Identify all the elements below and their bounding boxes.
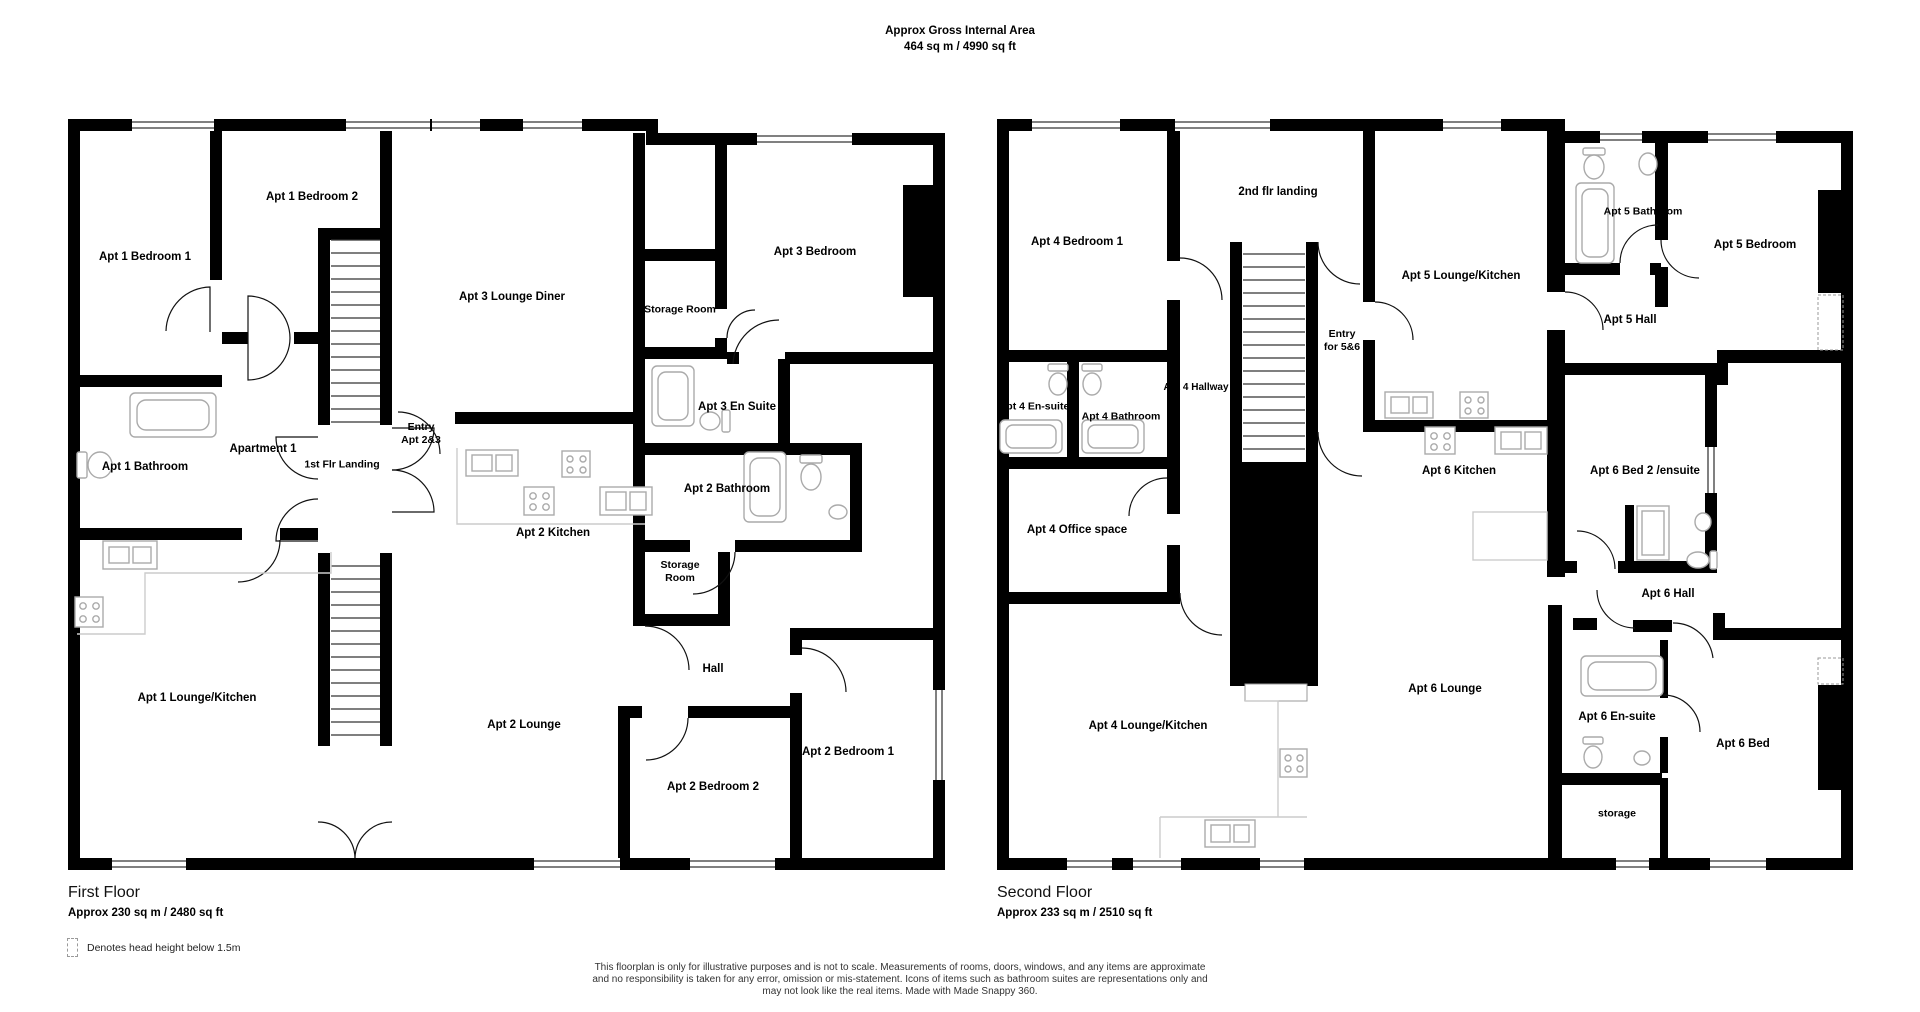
room-label-apt5-bathroom: Apt 5 Bathroom	[1604, 206, 1683, 219]
room-label-apt1-bedroom2: Apt 1 Bedroom 2	[266, 190, 358, 204]
bathtub-icon	[1000, 420, 1062, 453]
basin-icon	[829, 505, 847, 519]
floor-plan-drawing	[0, 0, 1920, 1012]
room-label-apt4-en-suite: Apt 4 En-suite	[999, 401, 1070, 414]
room-label-1st-flr-landing: 1st Flr Landing	[304, 459, 379, 472]
second-floor-walls	[997, 119, 1853, 870]
hob-icon	[1425, 427, 1455, 454]
room-label-apt1-lounge-kitchen: Apt 1 Lounge/Kitchen	[138, 691, 257, 705]
toilet-icon	[1583, 737, 1603, 768]
room-label-apt5-bedroom: Apt 5 Bedroom	[1714, 238, 1796, 252]
gross-area-title: Approx Gross Internal Area	[885, 24, 1035, 40]
second-floor-plan	[997, 119, 1853, 870]
toilet-icon	[800, 455, 822, 490]
floorplan-page: Approx Gross Internal Area 464 sq m / 49…	[0, 0, 1920, 1012]
room-label-apt1-bathroom: Apt 1 Bathroom	[102, 460, 188, 474]
room-label-apartment1: Apartment 1	[229, 442, 296, 456]
second-floor-name: Second Floor	[997, 884, 1152, 902]
first-floor-name: First Floor	[68, 884, 223, 902]
disclaimer: This floorplan is only for illustrative …	[395, 962, 1405, 998]
room-label-apt6-bed2-ensuite: Apt 6 Bed 2 /ensuite	[1590, 464, 1700, 478]
second-floor-title-block: Second Floor Approx 233 sq m / 2510 sq f…	[997, 884, 1152, 919]
kitchen-sink-icon	[1495, 427, 1547, 454]
hob-icon	[1280, 749, 1307, 777]
bathtub-icon	[1082, 420, 1144, 453]
room-label-apt2-bathroom: Apt 2 Bathroom	[684, 482, 770, 496]
second-floor-fixtures	[1000, 148, 1717, 858]
room-label-apt2-bedroom2: Apt 2 Bedroom 2	[667, 780, 759, 794]
room-label-entry-apt-2-3: Entry Apt 2&3	[401, 421, 441, 447]
toilet-icon	[1687, 551, 1717, 569]
hob-icon	[524, 487, 554, 515]
kitchen-sink-icon	[466, 450, 518, 476]
bathtub-icon	[1576, 183, 1614, 263]
room-label-apt6-en-suite: Apt 6 En-suite	[1578, 710, 1655, 724]
disclaimer-line-1: This floorplan is only for illustrative …	[395, 962, 1405, 974]
room-label-2nd-flr-landing: 2nd flr landing	[1238, 185, 1317, 199]
room-label-apt5-lounge-kitchen: Apt 5 Lounge/Kitchen	[1402, 269, 1521, 283]
toilet-icon	[1082, 364, 1102, 395]
room-label-apt2-lounge: Apt 2 Lounge	[487, 718, 560, 732]
bathtub-icon	[130, 393, 216, 437]
room-label-entry-for-5-6: Entry for 5&6	[1324, 328, 1360, 354]
room-label-apt6-hall: Apt 6 Hall	[1641, 587, 1694, 601]
room-label-apt6-kitchen: Apt 6 Kitchen	[1422, 464, 1496, 478]
room-label-apt3-en-suite: Apt 3 En Suite	[698, 400, 776, 414]
second-floor-stairs-icon	[1243, 254, 1305, 449]
second-floor-area: Approx 233 sq m / 2510 sq ft	[997, 907, 1152, 919]
kitchen-sink-icon	[1385, 392, 1433, 418]
kitchen-counter-outline	[1473, 512, 1547, 560]
basin-icon	[1639, 153, 1657, 175]
hob-icon	[562, 451, 590, 477]
head-height-dashed-icon	[67, 938, 78, 957]
hob-icon	[1460, 392, 1488, 418]
shower-icon	[1637, 506, 1669, 560]
kitchen-sink-icon	[1205, 820, 1255, 847]
first-floor-area: Approx 230 sq m / 2480 sq ft	[68, 907, 223, 919]
kitchen-sink-icon	[600, 487, 652, 515]
disclaimer-line-2: and no responsibility is taken for any e…	[395, 974, 1405, 986]
room-label-apt3-bedroom: Apt 3 Bedroom	[774, 245, 856, 259]
hob-icon	[75, 597, 103, 627]
room-label-apt6-bed: Apt 6 Bed	[1716, 737, 1770, 751]
room-label-apt2-storage-room: Storage Room	[660, 559, 699, 585]
disclaimer-line-3: may not look like the real items. Made w…	[395, 986, 1405, 998]
room-label-apt2-bedroom1: Apt 2 Bedroom 1	[802, 745, 894, 759]
legend: Denotes head height below 1.5m	[67, 938, 241, 957]
basin-icon	[1634, 751, 1650, 765]
first-floor-stairs-icon	[331, 240, 380, 735]
room-label-apt4-bathroom: Apt 4 Bathroom	[1082, 411, 1161, 424]
stair-landing-step	[1245, 684, 1307, 701]
room-label-apt4-lounge-kitchen: Apt 4 Lounge/Kitchen	[1089, 719, 1208, 733]
toilet-icon	[1048, 364, 1068, 395]
room-label-apt6-lounge: Apt 6 Lounge	[1408, 682, 1481, 696]
room-label-apt3-lounge-diner: Apt 3 Lounge Diner	[459, 290, 565, 304]
toilet-icon	[1583, 148, 1605, 179]
bathtub-icon	[1581, 656, 1663, 696]
room-label-apt4-hallway: Apt 4 Hallway	[1163, 382, 1228, 394]
room-label-storage-room: Storage Room	[644, 304, 716, 317]
kitchen-sink-icon	[103, 541, 157, 569]
room-label-apt1-bedroom1: Apt 1 Bedroom 1	[99, 250, 191, 264]
bathtub-icon	[652, 366, 694, 426]
room-label-apt2-kitchen: Apt 2 Kitchen	[516, 526, 590, 540]
room-label-storage: storage	[1598, 808, 1636, 821]
page-header: Approx Gross Internal Area 464 sq m / 49…	[885, 24, 1035, 55]
room-label-apt5-hall: Apt 5 Hall	[1603, 313, 1656, 327]
room-label-hall: Hall	[702, 662, 723, 676]
room-label-apt4-bedroom1: Apt 4 Bedroom 1	[1031, 235, 1123, 249]
room-label-apt4-office-space: Apt 4 Office space	[1027, 523, 1127, 537]
basin-icon	[1695, 513, 1711, 531]
gross-area-value: 464 sq m / 4990 sq ft	[885, 40, 1035, 56]
legend-text: Denotes head height below 1.5m	[87, 942, 241, 954]
first-floor-title-block: First Floor Approx 230 sq m / 2480 sq ft	[68, 884, 223, 919]
